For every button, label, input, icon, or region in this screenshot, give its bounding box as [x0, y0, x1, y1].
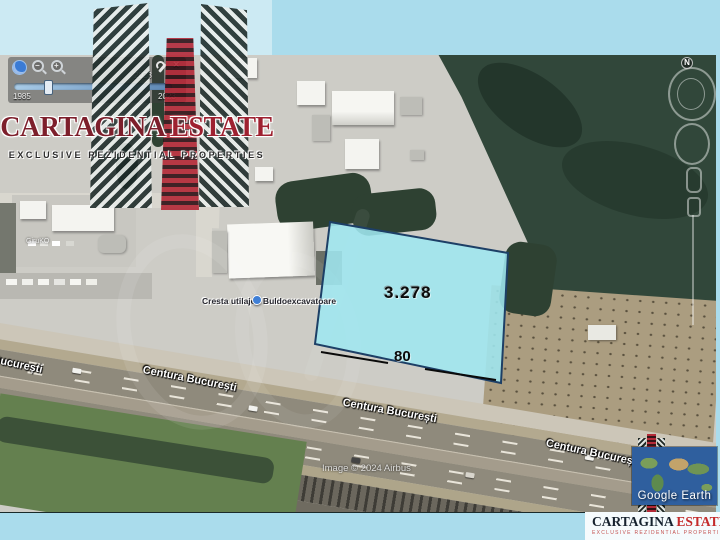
- place-pin-icon[interactable]: [252, 295, 262, 305]
- zoom-slider-knob[interactable]: [687, 197, 701, 217]
- slider-start-year: 1985: [13, 92, 31, 101]
- plus-glyph: +: [54, 61, 59, 70]
- compass-north-label[interactable]: N: [681, 57, 693, 69]
- settings-wrench-icon[interactable]: [156, 61, 168, 73]
- google-earth-screenshot: 3.278 80 Centura București Centura Bucur…: [0, 0, 720, 540]
- brand-name-secondary: ESTATE: [676, 514, 720, 529]
- slider-current-year: 2023: [134, 71, 152, 80]
- place-label-business[interactable]: Cresta utilaje - Buldoexcavatoare: [202, 296, 336, 306]
- brand-name-primary: CARTAGINA: [592, 514, 673, 529]
- parcel-area-label: 3.278: [384, 283, 432, 303]
- frame-right: [716, 55, 720, 512]
- brand-name-secondary: ESTATE: [170, 112, 273, 143]
- move-ring[interactable]: [674, 123, 710, 165]
- zoom-slider-track[interactable]: [692, 215, 694, 325]
- historical-imagery-panel: − + × 1985 2023 2023: [8, 57, 186, 103]
- time-slider-handle[interactable]: [44, 80, 53, 95]
- google-earth-wordmark: Google Earth: [632, 490, 717, 502]
- footer-brand-wordmark: CARTAGINA ESTATE: [592, 514, 718, 530]
- logo-background-glow: [0, 0, 272, 55]
- footer-brand-tagline: EXCLUSIVE REZIDENTIAL PROPERTIES: [592, 530, 718, 536]
- place-label-small: GiruKO: [26, 238, 49, 245]
- street-view-pegman[interactable]: [686, 167, 702, 193]
- brand-name-primary: CARTAGINA: [0, 112, 164, 143]
- zoom-out-icon[interactable]: −: [32, 60, 44, 72]
- slider-end-year: 2023: [158, 92, 176, 101]
- parcel-frontage-label: 80: [394, 348, 411, 365]
- brand-wordmark: CARTAGINA ESTATE: [0, 112, 274, 144]
- google-earth-logo: Google Earth: [632, 447, 717, 505]
- look-ring-inner[interactable]: [677, 78, 705, 110]
- brand-tagline: EXCLUSIVE REZIDENTIAL PROPERTIES: [2, 150, 272, 160]
- imagery-credit: Image © 2024 Airbus: [322, 463, 411, 474]
- zoom-in-icon[interactable]: +: [51, 60, 63, 72]
- close-icon[interactable]: ×: [173, 59, 179, 71]
- time-slider-track[interactable]: [14, 83, 172, 90]
- history-clock-icon[interactable]: [12, 60, 27, 75]
- minus-glyph: −: [35, 61, 40, 70]
